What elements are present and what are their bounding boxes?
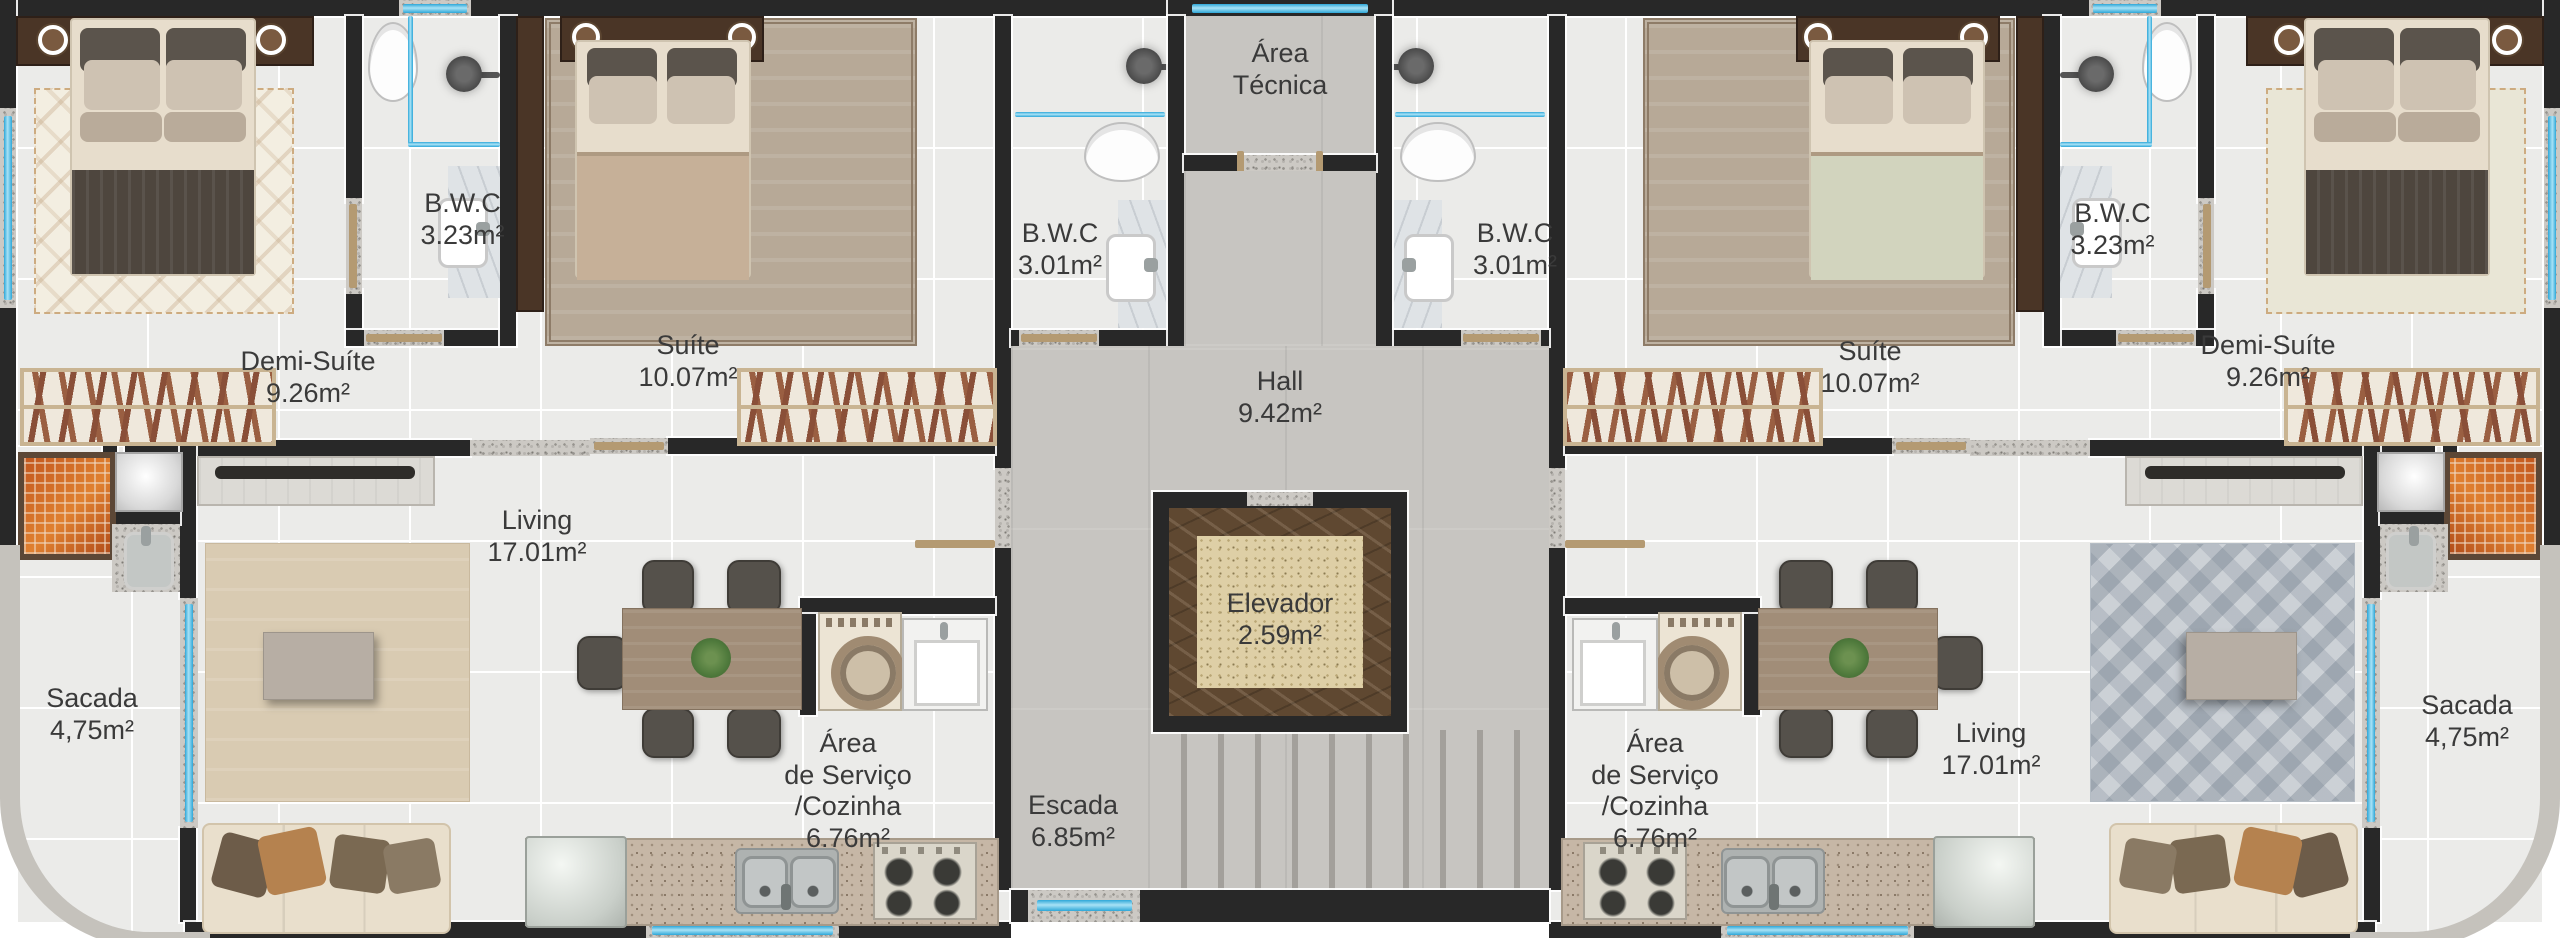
room-label-living-left: Living 17.01m²: [467, 505, 607, 568]
room-area: 4,75m²: [2397, 722, 2537, 754]
room-label-escada: Escada 6.85m²: [1003, 790, 1143, 853]
room-label-bwc-suite-left: B.W.C 3.01m²: [1000, 218, 1120, 281]
room-name: de Serviço: [763, 760, 933, 792]
room-name: de Serviço: [1570, 760, 1740, 792]
room-area: 3.01m²: [1000, 250, 1120, 282]
room-area: 3.23m²: [395, 220, 530, 252]
room-name: B.W.C: [1000, 218, 1120, 250]
floor-plan: Área Técnica Hall 9.42m² Elevador 2.59m²…: [0, 0, 2560, 938]
room-area: 9.42m²: [1210, 398, 1350, 430]
room-label-hall: Hall 9.42m²: [1210, 366, 1350, 429]
room-area: 3.23m²: [2045, 230, 2180, 262]
room-label-bwc-demi-right: B.W.C 3.23m²: [2045, 198, 2180, 261]
room-name: Sacada: [22, 683, 162, 715]
room-area: 6.76m²: [763, 823, 933, 855]
room-name: Área: [763, 728, 933, 760]
room-name: Sacada: [2397, 690, 2537, 722]
room-name: Hall: [1210, 366, 1350, 398]
room-name: Demi-Suíte: [238, 346, 378, 378]
room-labels: Área Técnica Hall 9.42m² Elevador 2.59m²…: [0, 0, 2560, 938]
room-name: B.W.C: [1455, 218, 1575, 250]
room-area: 9.26m²: [238, 378, 378, 410]
room-area: 10.07m²: [618, 362, 758, 394]
room-label-living-right: Living 17.01m²: [1921, 718, 2061, 781]
room-name: Living: [467, 505, 607, 537]
room-name: Área Técnica: [1212, 38, 1348, 101]
room-label-sacada-left: Sacada 4,75m²: [22, 683, 162, 746]
room-name: Área: [1570, 728, 1740, 760]
room-name: Elevador: [1210, 588, 1350, 620]
room-label-suite-left: Suíte 10.07m²: [618, 330, 758, 393]
room-label-area-tecnica: Área Técnica: [1212, 38, 1348, 101]
room-area: 4,75m²: [22, 715, 162, 747]
room-name: /Cozinha: [1570, 791, 1740, 823]
room-area: 17.01m²: [467, 537, 607, 569]
room-label-elevador: Elevador 2.59m²: [1210, 588, 1350, 651]
room-area: 3.01m²: [1455, 250, 1575, 282]
room-label-suite-right: Suíte 10.07m²: [1800, 336, 1940, 399]
room-name: Escada: [1003, 790, 1143, 822]
room-label-bwc-suite-right: B.W.C 3.01m²: [1455, 218, 1575, 281]
room-label-bwc-demi-left: B.W.C 3.23m²: [395, 188, 530, 251]
room-area: 6.85m²: [1003, 822, 1143, 854]
room-name: Suíte: [1800, 336, 1940, 368]
room-name: B.W.C: [395, 188, 530, 220]
room-name: /Cozinha: [763, 791, 933, 823]
room-name: B.W.C: [2045, 198, 2180, 230]
room-name: Suíte: [618, 330, 758, 362]
room-name: Living: [1921, 718, 2061, 750]
room-label-sacada-right: Sacada 4,75m²: [2397, 690, 2537, 753]
room-area: 17.01m²: [1921, 750, 2061, 782]
room-area: 10.07m²: [1800, 368, 1940, 400]
room-area: 2.59m²: [1210, 620, 1350, 652]
room-label-demi-suite-right: Demi-Suíte 9.26m²: [2198, 330, 2338, 393]
room-name: Demi-Suíte: [2198, 330, 2338, 362]
room-label-servico-left: Área de Serviço /Cozinha 6.76m²: [763, 728, 933, 854]
room-area: 6.76m²: [1570, 823, 1740, 855]
room-label-servico-right: Área de Serviço /Cozinha 6.76m²: [1570, 728, 1740, 854]
room-label-demi-suite-left: Demi-Suíte 9.26m²: [238, 346, 378, 409]
room-area: 9.26m²: [2198, 362, 2338, 394]
